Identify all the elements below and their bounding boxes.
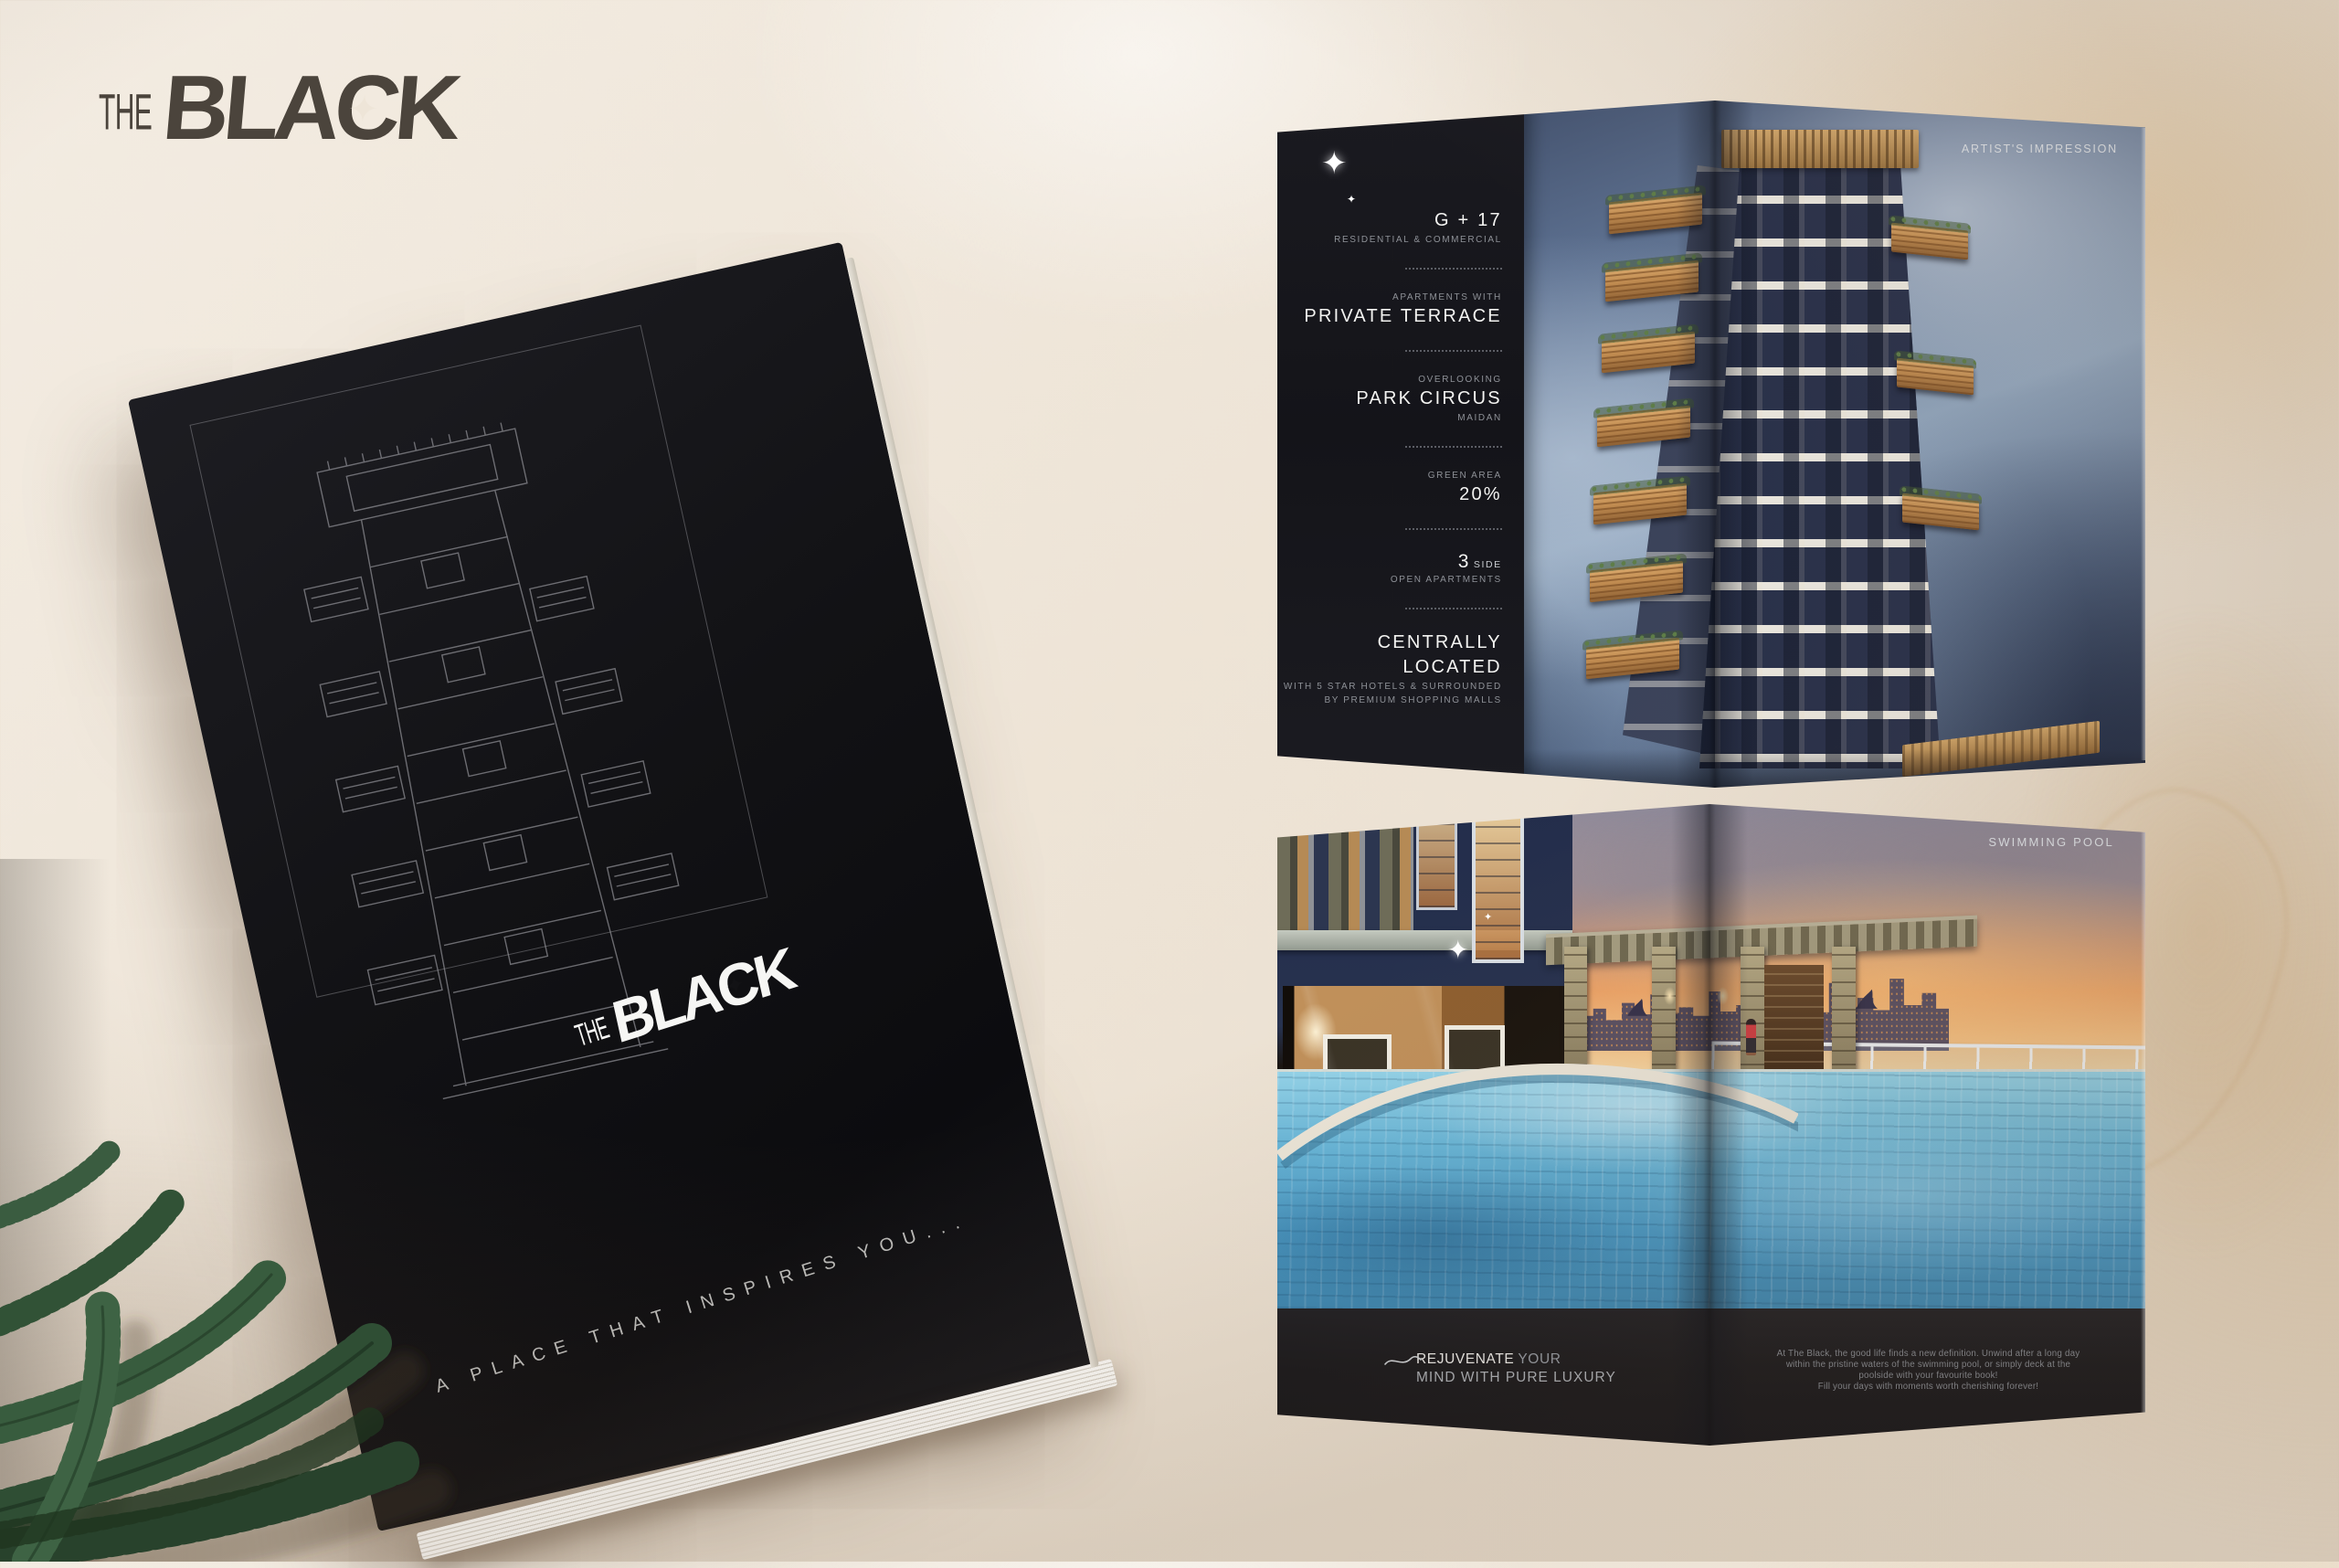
body-line: At The Black, the good life finds a new … — [1746, 1349, 2111, 1360]
dotted-divider — [1405, 350, 1502, 352]
spec-floors: G + 17 RESIDENTIAL & COMMERCIAL — [1334, 208, 1502, 247]
sparkle-icon: ✦ — [1347, 194, 1356, 205]
spec-location-sub1: WITH 5 STAR HOTELS & SURROUNDED — [1277, 680, 1502, 694]
body-copy: At The Black, the good life finds a new … — [1746, 1349, 2111, 1393]
spec-location-sub2: BY PREMIUM SHOPPING MALLS — [1277, 694, 1502, 707]
spec-green-area: GREEN AREA 20% — [1428, 469, 1502, 507]
sparkle-icon: ✦ — [1447, 938, 1468, 963]
spec-location: CENTRALLY LOCATED WITH 5 STAR HOTELS & S… — [1277, 630, 1502, 707]
body-line: within the pristine waters of the swimmi… — [1746, 1360, 2111, 1371]
lit-window — [1472, 814, 1523, 963]
tower-crown — [1721, 130, 1919, 168]
dotted-divider — [1405, 268, 1502, 270]
spec-floors-label: RESIDENTIAL & COMMERCIAL — [1334, 233, 1502, 247]
logo-letter-k: K — [391, 57, 460, 159]
body-line: Fill your days with moments worth cheris… — [1746, 1382, 2111, 1393]
spec-view: OVERLOOKING PARK CIRCUS MAIDAN — [1356, 373, 1501, 425]
pool-photo: ✦ ✦ SWIMMING POOL — [1277, 804, 2145, 1308]
headline-light: YOUR — [1518, 1351, 1561, 1367]
spec-green-value: 20% — [1428, 482, 1502, 507]
specs-list: G + 17 RESIDENTIAL & COMMERCIAL APARTMEN… — [1277, 208, 1502, 707]
page-edge — [2141, 830, 2145, 1420]
headline-block: REJUVENATEYOUR MIND WITH PURE LUXURY — [1416, 1351, 1616, 1387]
spec-terrace: APARTMENTS WITH PRIVATE TERRACE — [1304, 291, 1501, 329]
wall-lamp — [1717, 987, 1729, 1005]
body-line: poolside with your favourite book! — [1746, 1371, 2111, 1382]
spec-sides-number: 3 — [1458, 551, 1470, 572]
page-stack-edge-right — [845, 257, 1099, 1367]
sparkle-icon: ✦ — [346, 91, 380, 128]
headline-line2: MIND WITH PURE LUXURY — [1416, 1369, 1616, 1387]
headline-line1: REJUVENATEYOUR — [1416, 1351, 1616, 1369]
logo-letter-c: C✦ — [331, 62, 399, 154]
wall-lamp — [1664, 987, 1676, 1005]
headline-strong: REJUVENATE — [1416, 1351, 1514, 1367]
tower-building — [1551, 123, 2100, 768]
dotted-divider — [1405, 446, 1502, 448]
caption-band: REJUVENATEYOUR MIND WITH PURE LUXURY At … — [1277, 1308, 2145, 1446]
corner-label: ARTIST'S IMPRESSION — [1962, 143, 2118, 155]
fascia-band — [1277, 930, 1572, 950]
flourish-swirl — [1383, 1352, 1422, 1369]
brochure-mockup-scene: THE BLAC✦K — [0, 0, 2339, 1562]
corner-label: SWIMMING POOL — [1988, 835, 2114, 849]
balcony — [1609, 193, 1702, 235]
spread-artists-impression: ✈ ✦ ✦ — [1277, 101, 2145, 788]
spec-view-value: PARK CIRCUS — [1356, 387, 1501, 411]
pool-coping-edge — [1277, 1036, 1798, 1298]
dotted-divider — [1405, 528, 1502, 530]
page-edge — [2141, 128, 2145, 760]
spec-open-sides: 3 SIDE OPEN APARTMENTS — [1391, 551, 1502, 587]
spec-view-sublabel: MAIDAN — [1356, 411, 1501, 425]
logo-the-text: THE — [99, 82, 152, 142]
sparkle-icon: ✦ — [1321, 148, 1348, 179]
sparkle-icon: ✦ — [1484, 912, 1492, 922]
logo-letters-bla: BLA — [159, 57, 339, 159]
spread-swimming-pool: ✦ ✦ SWIMMING POOL REJUVENATEYOUR MIND WI… — [1277, 804, 2145, 1446]
brand-logo: THE BLAC✦K — [99, 62, 456, 154]
dotted-divider — [1405, 608, 1502, 609]
specs-panel: ✦ ✦ G + 17 RESIDENTIAL & COMMERCIAL APAR… — [1277, 101, 1524, 788]
spec-green-label: GREEN AREA — [1428, 469, 1502, 482]
spec-sides-word: SIDE — [1474, 559, 1502, 570]
logo-black-text: BLAC✦K — [160, 62, 460, 154]
spec-terrace-value: PRIVATE TERRACE — [1304, 304, 1501, 329]
spec-floors-value: G + 17 — [1334, 208, 1502, 233]
spec-terrace-label: APARTMENTS WITH — [1304, 291, 1501, 304]
palm-leaves — [0, 987, 696, 1562]
spec-location-value: CENTRALLY LOCATED — [1277, 630, 1502, 680]
spec-sides-label: OPEN APARTMENTS — [1391, 573, 1502, 587]
slat-wall — [1277, 804, 1413, 936]
spec-view-label: OVERLOOKING — [1356, 373, 1501, 387]
lit-window — [1416, 804, 1457, 910]
